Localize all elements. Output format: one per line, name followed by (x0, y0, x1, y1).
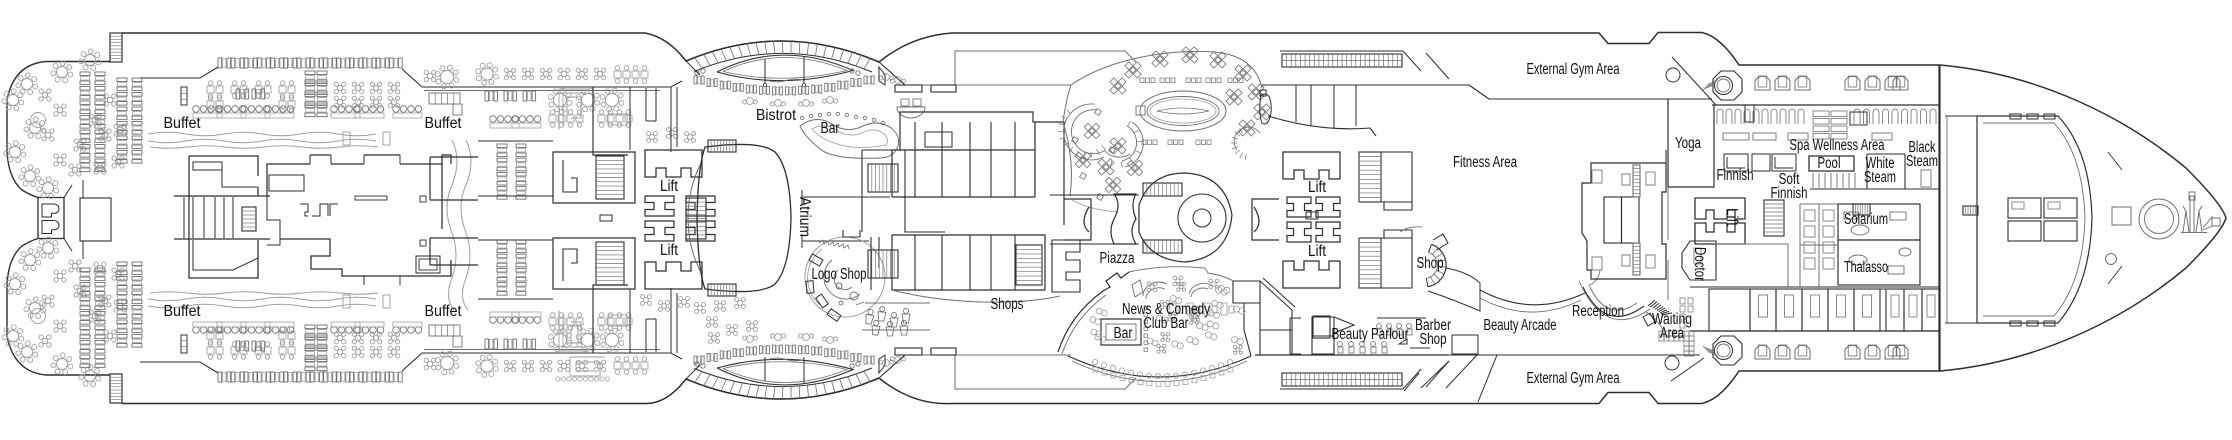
svg-text:Beauty Arcade: Beauty Arcade (1484, 317, 1557, 334)
svg-text:Doctor: Doctor (1691, 247, 1708, 281)
svg-text:Shop: Shop (1417, 255, 1444, 272)
svg-text:Fitness Area: Fitness Area (1453, 154, 1517, 171)
svg-text:Lift: Lift (1308, 179, 1327, 196)
svg-text:Piazza: Piazza (1100, 250, 1135, 267)
svg-text:Bar: Bar (821, 120, 840, 137)
svg-text:Lift: Lift (1308, 243, 1327, 260)
svg-text:Buffet: Buffet (164, 303, 202, 320)
svg-text:Buffet: Buffet (425, 115, 463, 132)
svg-text:Shops: Shops (991, 296, 1024, 313)
svg-text:Bar: Bar (1114, 325, 1133, 342)
svg-text:External Gym Area: External Gym Area (1527, 61, 1620, 78)
svg-text:Buffet: Buffet (425, 303, 463, 320)
svg-text:Pool: Pool (1818, 155, 1841, 172)
svg-text:Thalasso: Thalasso (1844, 259, 1888, 276)
svg-text:Steam: Steam (1864, 169, 1896, 186)
svg-text:Finnish: Finnish (1717, 167, 1754, 184)
svg-text:Yoga: Yoga (1675, 135, 1701, 152)
svg-text:External Gym Area: External Gym Area (1527, 370, 1620, 387)
svg-text:Shop: Shop (1420, 331, 1447, 348)
svg-text:Lift: Lift (660, 178, 679, 195)
svg-text:Club Bar: Club Bar (1144, 315, 1189, 332)
svg-text:Lift: Lift (1723, 208, 1740, 227)
svg-text:Beauty Parlour: Beauty Parlour (1332, 326, 1409, 343)
svg-text:Buffet: Buffet (164, 115, 202, 132)
svg-text:Lift: Lift (660, 242, 679, 259)
svg-text:Spa Wellness Area: Spa Wellness Area (1790, 137, 1885, 154)
svg-text:Solarium: Solarium (1844, 211, 1888, 228)
svg-text:Reception: Reception (1572, 303, 1624, 320)
svg-text:Bistrot: Bistrot (756, 107, 797, 124)
svg-text:Steam: Steam (1906, 153, 1938, 170)
svg-text:Area: Area (1660, 325, 1684, 342)
svg-text:Finnish: Finnish (1771, 185, 1808, 202)
svg-text:Atrium: Atrium (796, 197, 813, 237)
svg-text:Logo Shop: Logo Shop (812, 266, 867, 283)
